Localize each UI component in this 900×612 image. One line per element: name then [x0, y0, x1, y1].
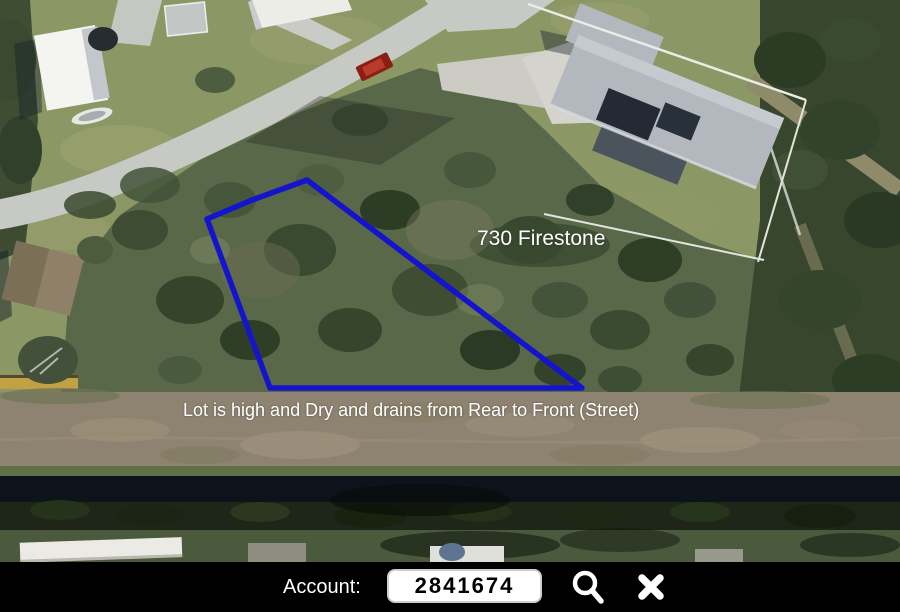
shed-roof — [165, 2, 208, 36]
search-icon — [570, 569, 606, 606]
bottom-grass-strip — [0, 528, 900, 562]
account-input[interactable] — [387, 569, 542, 603]
backyard-pool — [88, 27, 118, 51]
account-label: Account: — [283, 562, 361, 612]
account-toolbar: Account: — [0, 562, 900, 612]
close-button[interactable] — [637, 573, 665, 601]
gray-building-roof — [695, 549, 743, 562]
dome-structure — [439, 543, 465, 561]
grass-strip — [0, 466, 900, 477]
address-label: 730 Firestone — [477, 227, 605, 251]
gray-building-roof — [248, 543, 306, 562]
aerial-map: 730 Firestone Lot is high and Dry and dr… — [0, 0, 900, 562]
aerial-scene — [0, 0, 900, 562]
property-appraiser-window: 730 Firestone Lot is high and Dry and dr… — [0, 0, 900, 612]
lot-note-label: Lot is high and Dry and drains from Rear… — [183, 400, 639, 421]
search-button[interactable] — [570, 569, 606, 606]
close-icon — [637, 573, 665, 601]
